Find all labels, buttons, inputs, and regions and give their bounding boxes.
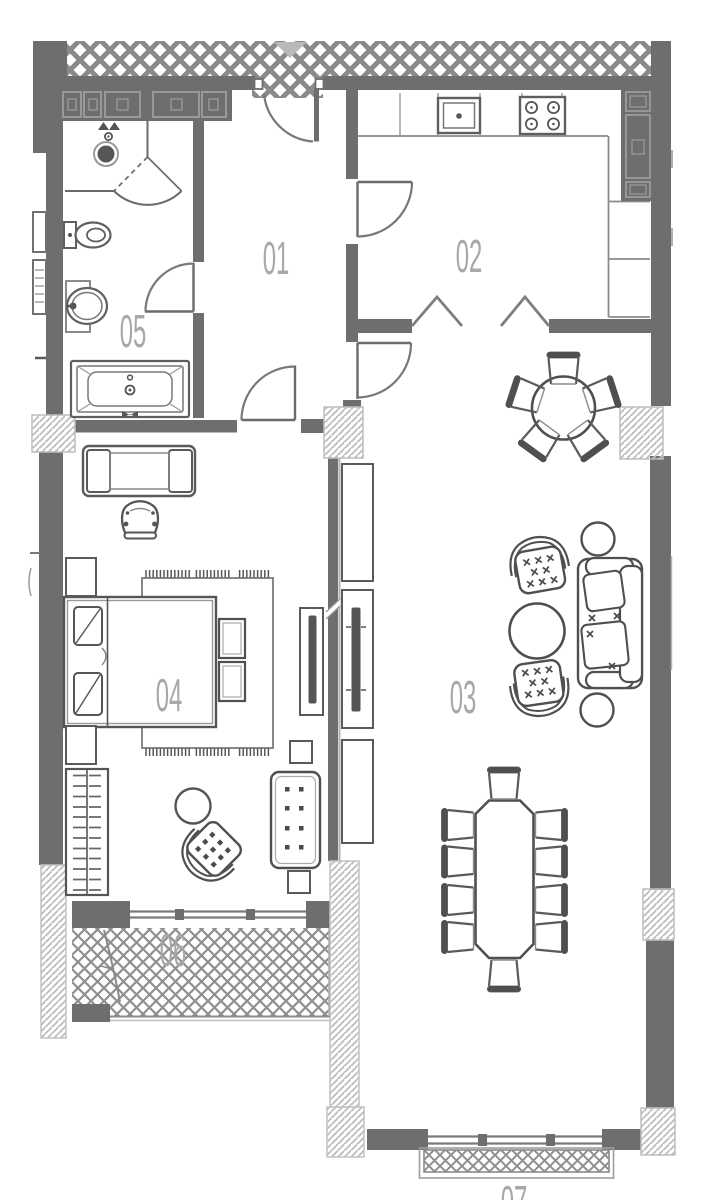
svg-text:05: 05 (120, 306, 147, 357)
svg-text:01: 01 (263, 233, 290, 284)
svg-text:07: 07 (501, 1177, 528, 1200)
svg-text:06: 06 (160, 925, 187, 976)
svg-text:02: 02 (456, 231, 483, 282)
svg-text:04: 04 (156, 670, 183, 721)
svg-text:03: 03 (450, 672, 477, 723)
